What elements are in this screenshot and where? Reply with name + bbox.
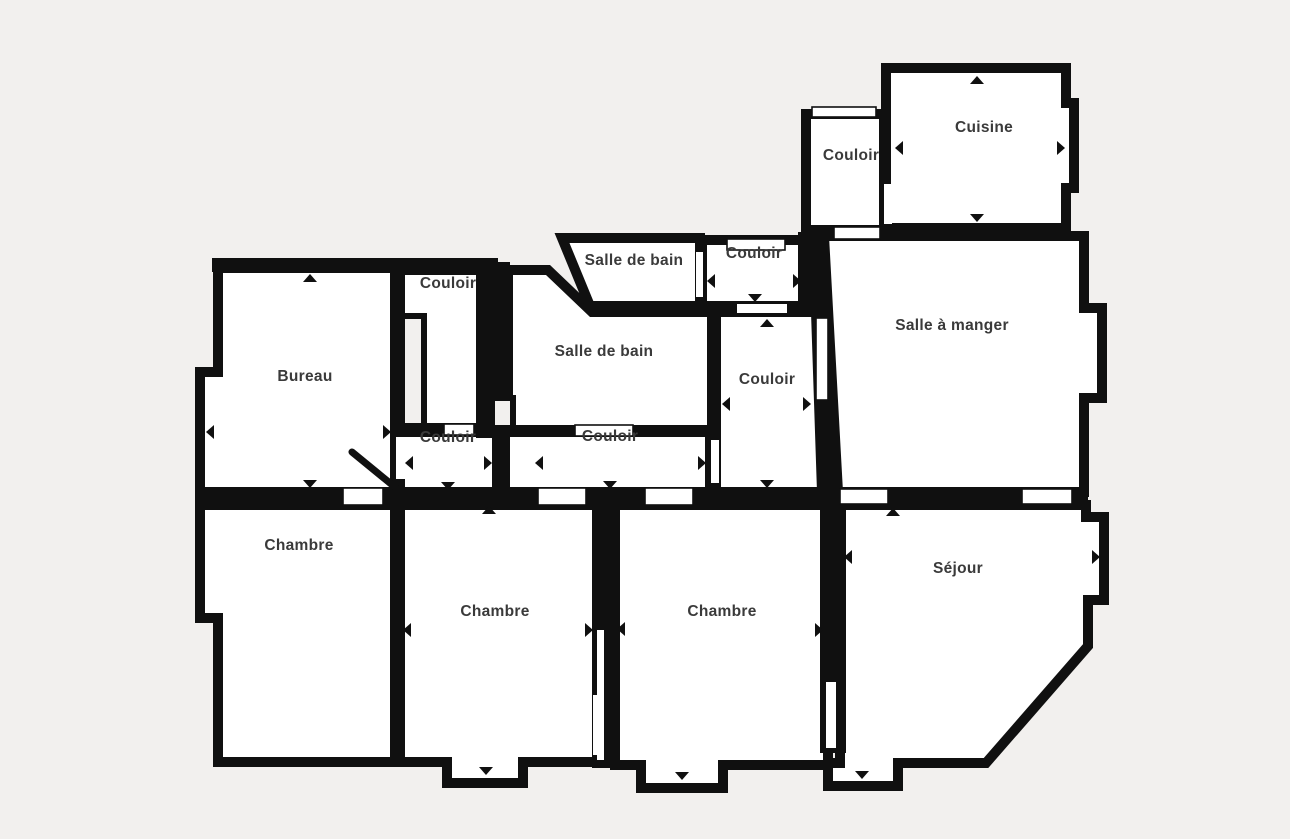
window-opening — [343, 488, 383, 505]
room-chambre-droite — [615, 505, 828, 788]
window-opening — [834, 227, 880, 239]
window-opening — [1022, 489, 1072, 504]
door-opening — [396, 437, 405, 479]
door-opening — [696, 252, 703, 297]
room-label-couloir-topleft: Couloir — [420, 275, 476, 292]
door-opening — [711, 440, 719, 483]
window-opening — [538, 488, 586, 505]
door-opening — [597, 630, 604, 760]
wall-segment — [212, 258, 498, 272]
wall-segment — [798, 232, 828, 310]
door-opening — [826, 682, 836, 748]
shaft-void — [492, 398, 513, 428]
window-opening — [645, 488, 693, 505]
room-label-cuisine: Cuisine — [955, 119, 1013, 136]
floorplan-image: BureauCouloirCouloirSalle de bainCouloir… — [0, 0, 1290, 839]
room-couloir-cuisine — [806, 114, 884, 230]
room-salle-a-manger — [824, 236, 1102, 492]
room-label-couloir-haut-petit: Couloir — [726, 245, 782, 262]
room-label-sejour: Séjour — [933, 560, 983, 577]
door-opening — [884, 184, 892, 224]
room-label-chambre-gauche: Chambre — [264, 537, 333, 554]
room-label-bureau: Bureau — [277, 368, 332, 385]
door-opening — [737, 304, 787, 313]
room-salle-de-bain-petite — [562, 238, 700, 306]
room-label-salle-de-bain-petite: Salle de bain — [585, 252, 684, 269]
shaft-void — [402, 316, 424, 426]
wall-segment — [195, 487, 840, 507]
floorplan-svg: BureauCouloirCouloirSalle de bainCouloir… — [0, 0, 1290, 839]
room-label-salle-de-bain-grande: Salle de bain — [555, 343, 654, 360]
room-label-couloir-vertical: Couloir — [739, 371, 795, 388]
room-label-salle-a-manger: Salle à manger — [895, 317, 1009, 334]
room-label-couloir-lower-left: Couloir — [420, 429, 476, 446]
room-label-couloir-cuisine: Couloir — [823, 147, 879, 164]
room-label-chambre-milieu: Chambre — [460, 603, 529, 620]
room-chambre-milieu — [400, 505, 598, 783]
window-opening — [840, 489, 888, 504]
room-label-chambre-droite: Chambre — [687, 603, 756, 620]
window-opening — [812, 107, 876, 117]
window-opening — [816, 318, 828, 400]
room-label-couloir-central: Couloir — [582, 428, 638, 445]
room-cuisine — [886, 68, 1074, 228]
